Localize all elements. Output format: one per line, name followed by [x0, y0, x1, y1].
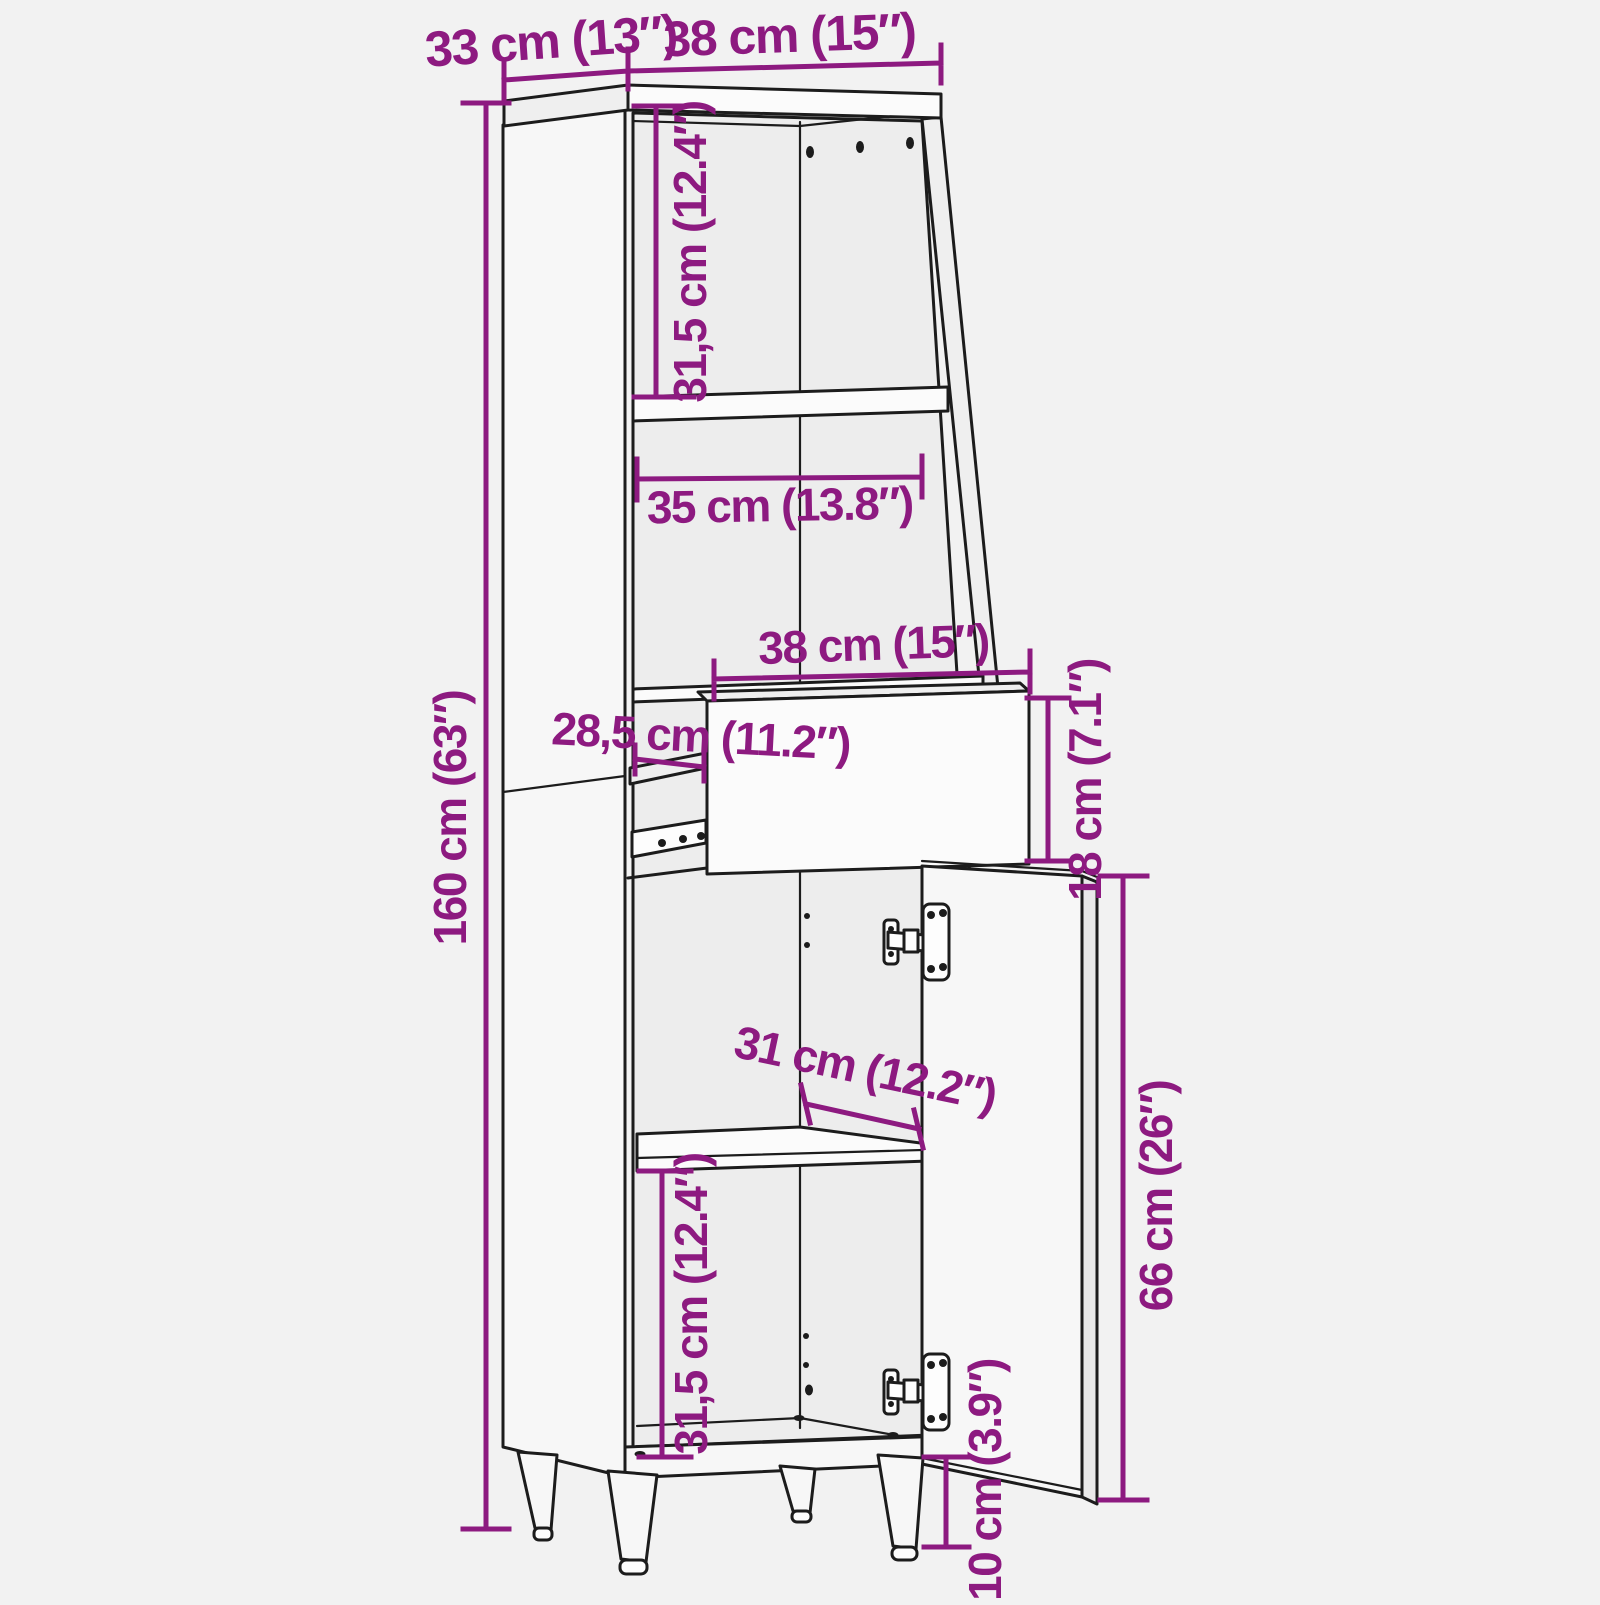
rail-hole: [658, 839, 666, 847]
leg-foot: [892, 1547, 917, 1560]
dimension-label-drawer-width: 38 cm (15″): [757, 614, 989, 674]
shelf-pin: [804, 913, 810, 919]
hinge-screw: [939, 963, 947, 971]
dimension-label-door-height: 66 cm (26″): [1130, 1081, 1182, 1312]
leg-front-right: [878, 1455, 923, 1549]
dimension-overall-height: 160 cm (63″): [424, 103, 509, 1529]
screw-icon: [805, 1385, 813, 1396]
screw-icon: [856, 141, 864, 153]
dimension-drawer-height: 18 cm (7.1″): [1027, 659, 1111, 901]
hinge-screw: [939, 1413, 947, 1421]
hinge-boss: [904, 1380, 918, 1402]
leg-foot: [620, 1560, 647, 1574]
dimension-top-width: 38 cm (15″): [628, 3, 941, 83]
shelf-pin: [803, 1362, 809, 1368]
cabinet-dimension-diagram: 33 cm (13″) 38 cm (15″) 31,5 cm (12.4″) …: [0, 0, 1600, 1600]
hinge-screw: [927, 911, 935, 919]
hinge-screw: [927, 1415, 935, 1423]
hinge-screw: [939, 909, 947, 917]
dimension-label-lower-compartment: 31,5 cm (12.4″): [665, 1153, 717, 1454]
dimension-label-interior-width: 35 cm (13.8″): [646, 477, 913, 534]
leg-back-left: [518, 1452, 557, 1530]
leg-back-right: [780, 1466, 815, 1513]
dimension-label-leg-height: 10 cm (3.9″): [959, 1359, 1011, 1600]
hinge-screw: [888, 951, 894, 957]
dimension-label-upper-compartment: 31,5 cm (12.4″): [664, 101, 716, 402]
hinge-boss: [904, 930, 918, 952]
floor-fitting: [888, 1432, 899, 1438]
rail-hole: [679, 835, 687, 843]
leg-foot: [534, 1528, 552, 1540]
hinge-screw: [927, 965, 935, 973]
dimension-door-height: 66 cm (26″): [1100, 876, 1182, 1500]
hinge-screw: [888, 1401, 894, 1407]
dimension-label-drawer-height: 18 cm (7.1″): [1059, 659, 1111, 901]
rail-hole: [697, 832, 705, 840]
leg-front-left: [608, 1471, 657, 1562]
left-panel-face: [503, 109, 625, 1477]
dimension-label-top-depth: 33 cm (13″): [423, 4, 678, 77]
screw-icon: [906, 137, 914, 149]
shelf-pin: [804, 942, 810, 948]
cabinet-line-art: [503, 85, 1097, 1574]
leg-foot: [792, 1511, 811, 1522]
dimension-label-overall-height: 160 cm (63″): [424, 691, 476, 946]
door-side-band: [1082, 876, 1097, 1504]
hinge-screw: [927, 1361, 935, 1369]
left-side-panel: [503, 109, 625, 1477]
shelf-pin: [803, 1333, 809, 1339]
hinge-screw: [939, 1359, 947, 1367]
screw-icon: [806, 146, 814, 158]
dimension-label-top-width: 38 cm (15″): [662, 3, 916, 68]
floor-fitting: [794, 1415, 805, 1421]
